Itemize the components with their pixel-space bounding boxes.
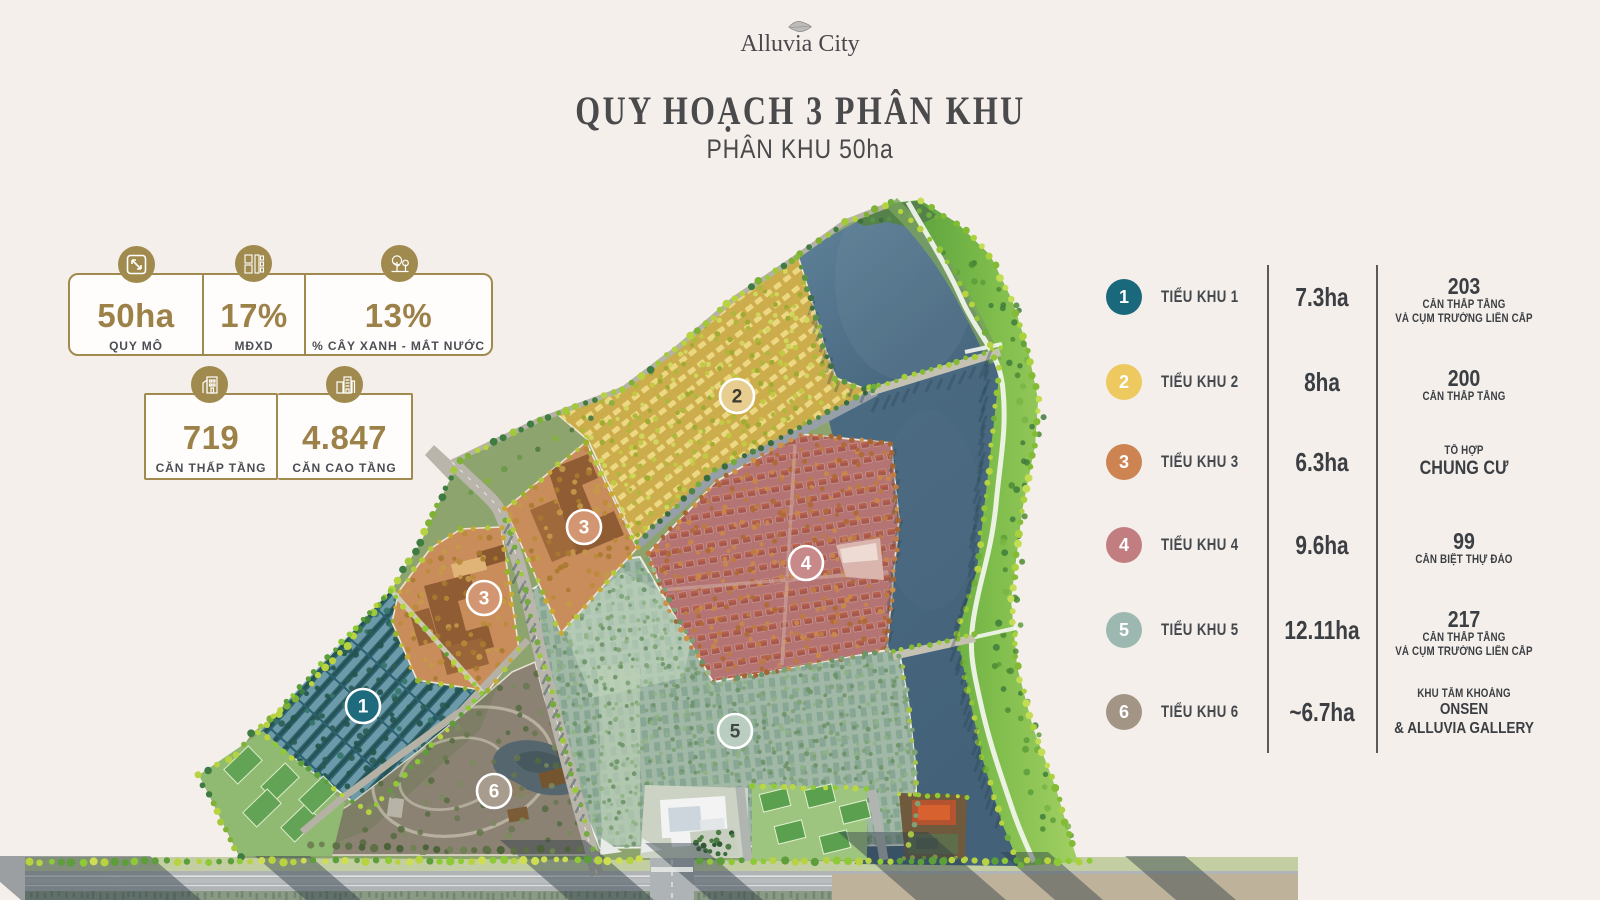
svg-text:1: 1 [358, 697, 369, 718]
svg-text:3: 3 [479, 589, 490, 610]
svg-text:6: 6 [489, 782, 500, 803]
svg-text:2: 2 [732, 387, 743, 408]
svg-text:4: 4 [801, 554, 812, 575]
svg-text:3: 3 [579, 518, 590, 539]
svg-text:5: 5 [730, 722, 741, 743]
